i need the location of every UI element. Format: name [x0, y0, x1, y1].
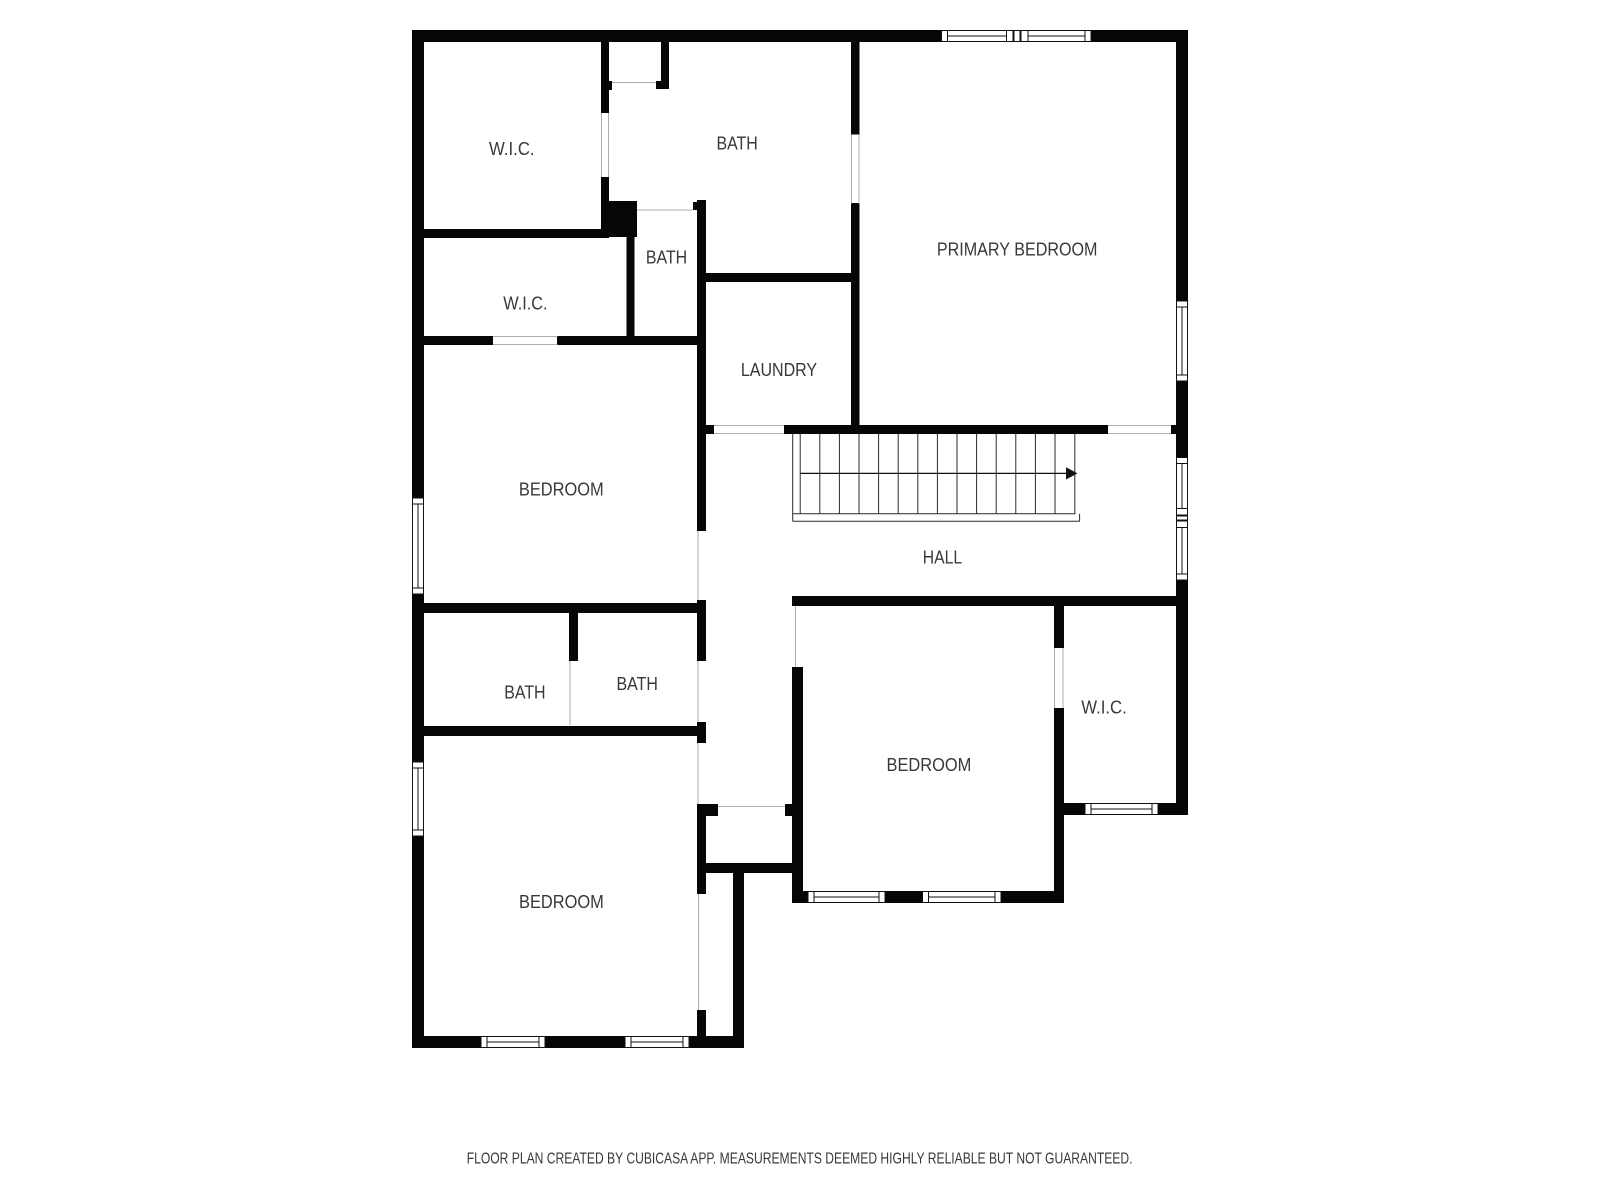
svg-text:FLOOR PLAN CREATED BY CUBICASA: FLOOR PLAN CREATED BY CUBICASA APP. MEAS… [467, 1150, 1133, 1167]
svg-text:BATH: BATH [716, 133, 757, 153]
svg-text:LAUNDRY: LAUNDRY [741, 360, 817, 380]
svg-text:BATH: BATH [646, 248, 687, 268]
svg-text:W.I.C.: W.I.C. [489, 139, 535, 159]
svg-text:HALL: HALL [923, 548, 962, 568]
svg-text:BEDROOM: BEDROOM [519, 892, 604, 912]
svg-text:PRIMARY BEDROOM: PRIMARY BEDROOM [937, 240, 1098, 260]
svg-text:BEDROOM: BEDROOM [519, 480, 604, 500]
svg-text:BATH: BATH [504, 682, 545, 702]
svg-text:W.I.C.: W.I.C. [503, 293, 547, 313]
svg-text:W.I.C.: W.I.C. [1081, 698, 1127, 718]
svg-text:BATH: BATH [617, 674, 658, 694]
svg-text:BEDROOM: BEDROOM [887, 755, 972, 775]
